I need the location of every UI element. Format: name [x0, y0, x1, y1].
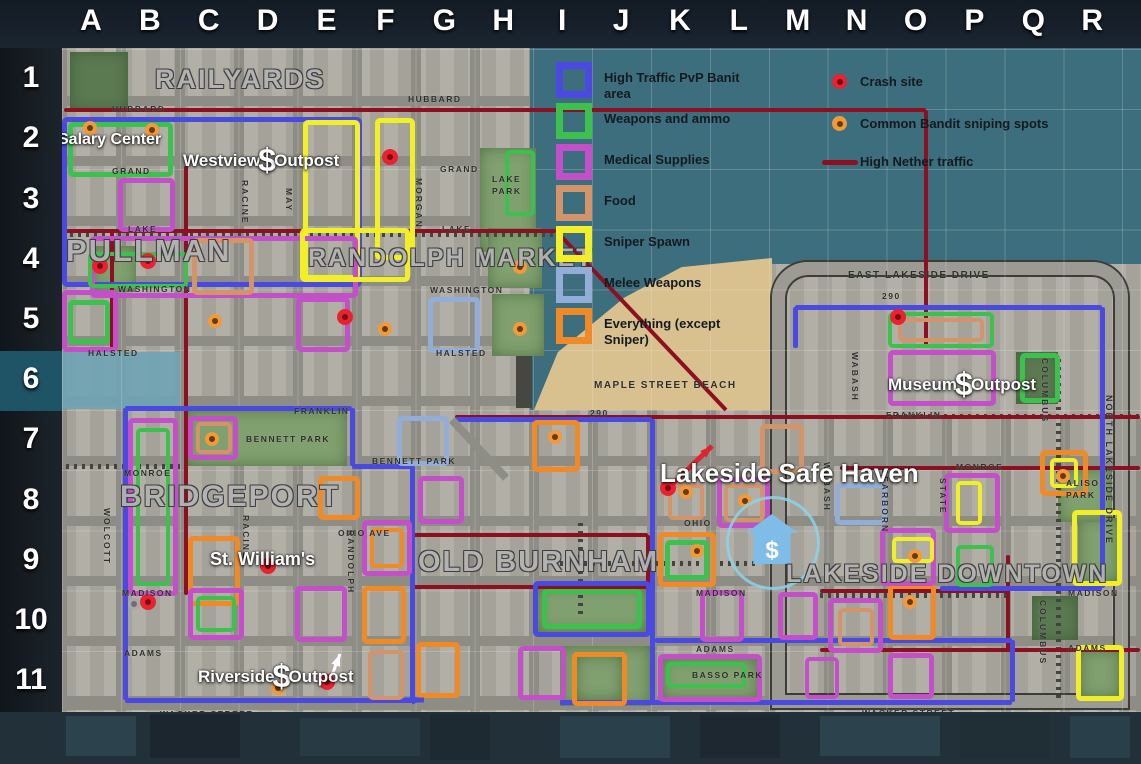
street-label: WASHINGTON — [118, 284, 191, 294]
everything-zone-box — [362, 586, 406, 644]
footer-block — [300, 718, 420, 756]
food-zone-box — [838, 608, 874, 646]
pvp-boundary-line — [1010, 640, 1015, 702]
bandit-sniping-spot-icon — [548, 430, 562, 444]
street-label: ADAMS — [696, 644, 735, 654]
street-label: WABASH — [850, 352, 860, 402]
legend-swatch — [556, 226, 592, 262]
park-name-label: ALISO — [1066, 478, 1099, 488]
street-label: BENNETT PARK — [372, 456, 456, 466]
grid-column-label-j: J — [613, 4, 630, 38]
street-label: NORTH LAKESIDE DRIVE — [1104, 395, 1114, 545]
street-label: MADISON — [1068, 588, 1119, 598]
place-label: St. William's — [210, 549, 315, 570]
street-label: HALSTED — [88, 348, 139, 358]
grid-row-label-6: 6 — [23, 362, 40, 396]
grid-column-label-q: Q — [1022, 4, 1045, 38]
street-label: MADISON — [122, 588, 173, 598]
grid-column-label-k: K — [669, 4, 691, 38]
footer-block — [560, 716, 670, 758]
district-label: LAKESIDE DOWNTOWN — [786, 560, 1108, 589]
grid-row-label-8: 8 — [23, 483, 40, 517]
footer-block — [700, 714, 780, 758]
grid-row-label-9: 9 — [23, 543, 40, 577]
grid-column-label-p: P — [964, 4, 984, 38]
legend-swatch — [556, 267, 592, 303]
legend-swatch — [556, 144, 592, 180]
grid-column-label-b: B — [139, 4, 161, 38]
place-label: Lakeside Safe Haven — [660, 458, 919, 489]
street-label: GRAND — [112, 166, 151, 176]
everything-zone-box — [572, 652, 627, 706]
legend-label: Medical Supplies — [604, 152, 754, 168]
footer-block — [820, 716, 940, 756]
place-label: Salary Center — [58, 131, 161, 149]
street-label: STATE — [938, 478, 948, 515]
street-label: WASHINGTON — [430, 285, 503, 295]
weapons-zone-box — [542, 589, 642, 629]
legend-label: High Nether traffic — [860, 154, 1100, 170]
grid-row-label-4: 4 — [23, 242, 40, 276]
bandit-sniping-spot-icon — [903, 595, 917, 609]
legend-label: Food — [604, 193, 754, 209]
district-label: RAILYARDS — [155, 64, 326, 95]
street-label: HUBBARD — [112, 104, 165, 114]
district-label: PULLMAN — [66, 233, 232, 269]
legend-swatch — [556, 62, 592, 98]
grid-row-label-11: 11 — [15, 663, 47, 697]
street-label: MADISON — [696, 588, 747, 598]
park-name-label: BASSO PARK — [692, 670, 763, 680]
grid-column-label-o: O — [904, 4, 927, 38]
street-label: COLUMBUS — [1040, 358, 1050, 423]
river-water — [62, 352, 180, 409]
legend-label: Sniper Spawn — [604, 234, 754, 250]
street-label: LAKE — [442, 224, 471, 234]
footer-block — [430, 714, 490, 760]
street-label: FRANKLIN — [294, 406, 349, 416]
park-name-label: PARK — [492, 186, 521, 196]
footer-block — [66, 716, 136, 756]
weapons-zone-box — [68, 300, 110, 344]
street-label: MONROE — [124, 468, 171, 478]
pvp-boundary-line — [350, 408, 355, 466]
crash-site-icon — [337, 309, 353, 325]
district-label: OLD BURNHAM — [418, 546, 659, 579]
street-label: 290 — [590, 408, 609, 418]
grid-column-label-i: I — [558, 4, 566, 38]
food-zone-box — [368, 650, 404, 700]
weapons-zone-box — [196, 596, 236, 632]
legend-label: Common Bandit sniping spots — [860, 116, 1100, 132]
crash-site-icon — [382, 149, 398, 165]
medical-zone-box — [805, 657, 839, 699]
park-name-label: LAKE — [492, 174, 521, 184]
park-area — [70, 52, 128, 110]
street-label: FRANKLIN — [886, 410, 941, 420]
street-label: RANDOLPH — [346, 530, 356, 594]
legend-swatch — [556, 185, 592, 221]
district-label: BRIDGEPORT — [120, 480, 340, 514]
medical-zone-box — [518, 646, 566, 700]
footer-band — [0, 712, 1141, 764]
grid-row-label-1: 1 — [23, 61, 40, 95]
grid-column-label-r: R — [1081, 4, 1103, 38]
bandit-sniping-spot-icon — [690, 544, 704, 558]
place-label: Museum$Outpost — [888, 370, 1036, 399]
grid-row-label-2: 2 — [23, 121, 40, 155]
bandit-sniping-spot-icon — [378, 322, 392, 336]
legend-label: High Traffic PvP Banit area — [604, 70, 754, 103]
street-label: ADAMS — [124, 648, 163, 658]
park-name-label: BENNETT PARK — [246, 434, 330, 444]
grid-column-label-d: D — [257, 4, 279, 38]
grid-row-label-10: 10 — [14, 603, 47, 637]
row-number-sidebar: 1234567891011 — [0, 48, 62, 712]
footer-block — [1070, 716, 1130, 758]
legend-swatch — [556, 308, 592, 344]
railroad-line — [1056, 354, 1061, 698]
legend-label: Melee Weapons — [604, 275, 754, 291]
street-label: WOLCOTT — [102, 508, 112, 565]
street-label: GRAND — [440, 164, 479, 174]
street-label: HUBBARD — [408, 94, 461, 104]
grid-column-label-l: L — [730, 4, 748, 38]
grid-column-label-e: E — [317, 4, 337, 38]
safe-house-dollar: $ — [765, 538, 778, 564]
street-label: RACINE — [240, 180, 250, 225]
park-name-label: PARK — [1066, 490, 1095, 500]
street-label: MAY — [284, 188, 294, 212]
medical-zone-box — [888, 653, 934, 699]
grid-column-label-g: G — [433, 4, 456, 38]
everything-zone-box — [532, 420, 580, 472]
column-header-bar: ABCDEFGHIJKLMNOPQR — [0, 0, 1141, 48]
footer-block — [960, 714, 1050, 758]
pier — [516, 350, 532, 408]
street-label: MORGAN — [414, 178, 424, 229]
grid-row-label-5: 5 — [23, 302, 40, 336]
everything-zone-box — [416, 642, 460, 698]
medical-zone-box — [418, 476, 464, 524]
street-label: OHIO — [684, 518, 712, 528]
everything-zone-box — [888, 584, 936, 640]
legend-label: Everything (except Sniper) — [604, 316, 754, 349]
sniper-zone-box — [1076, 645, 1124, 701]
grid-column-label-m: M — [785, 4, 810, 38]
medical-zone-box — [778, 592, 818, 640]
grid-row-label-3: 3 — [23, 182, 40, 216]
street-label: COLUMBUS — [1038, 600, 1048, 665]
place-label: Westview$Outpost — [183, 146, 339, 175]
grid-column-label-h: H — [492, 4, 514, 38]
gray-marker-icon — [128, 598, 140, 610]
place-label: Riverside$Outpost — [198, 662, 354, 691]
legend-label: Weapons and ammo — [604, 111, 754, 127]
bandit-sniping-spot-icon — [208, 314, 222, 328]
melee-zone-box — [428, 297, 480, 353]
crash-site-icon — [832, 74, 847, 89]
sniper-zone-box — [956, 481, 982, 525]
street-label: HALSTED — [436, 348, 487, 358]
grid-row-label-7: 7 — [23, 422, 40, 456]
street-label: MAPLE STREET BEACH — [594, 380, 737, 391]
street-label: ADAMS — [1068, 643, 1107, 653]
street-label: MONROE — [956, 462, 1003, 472]
bandit-sniping-spot-icon — [832, 116, 847, 131]
bandit-sniping-spot-icon — [513, 322, 527, 336]
nether-traffic-line — [412, 533, 648, 537]
medical-zone-box — [295, 586, 347, 642]
footer-block — [150, 714, 240, 758]
map-legend: High Traffic PvP Banit areaWeapons and a… — [548, 56, 1128, 356]
grid-column-label-a: A — [80, 4, 102, 38]
pvp-boundary-line — [560, 700, 1012, 705]
nether-line-icon — [822, 160, 858, 165]
grid-column-label-c: C — [198, 4, 220, 38]
pvp-boundary-line — [410, 466, 415, 700]
grid-column-label-n: N — [846, 4, 868, 38]
legend-label: Crash site — [860, 74, 1100, 90]
game-map-screenshot: $ HUBBARDHUBBARDGRANDGRANDLAKELAKEWASHIN… — [0, 0, 1141, 764]
bandit-sniping-spot-icon — [205, 432, 219, 446]
legend-swatch — [556, 103, 592, 139]
grid-column-label-f: F — [376, 4, 394, 38]
